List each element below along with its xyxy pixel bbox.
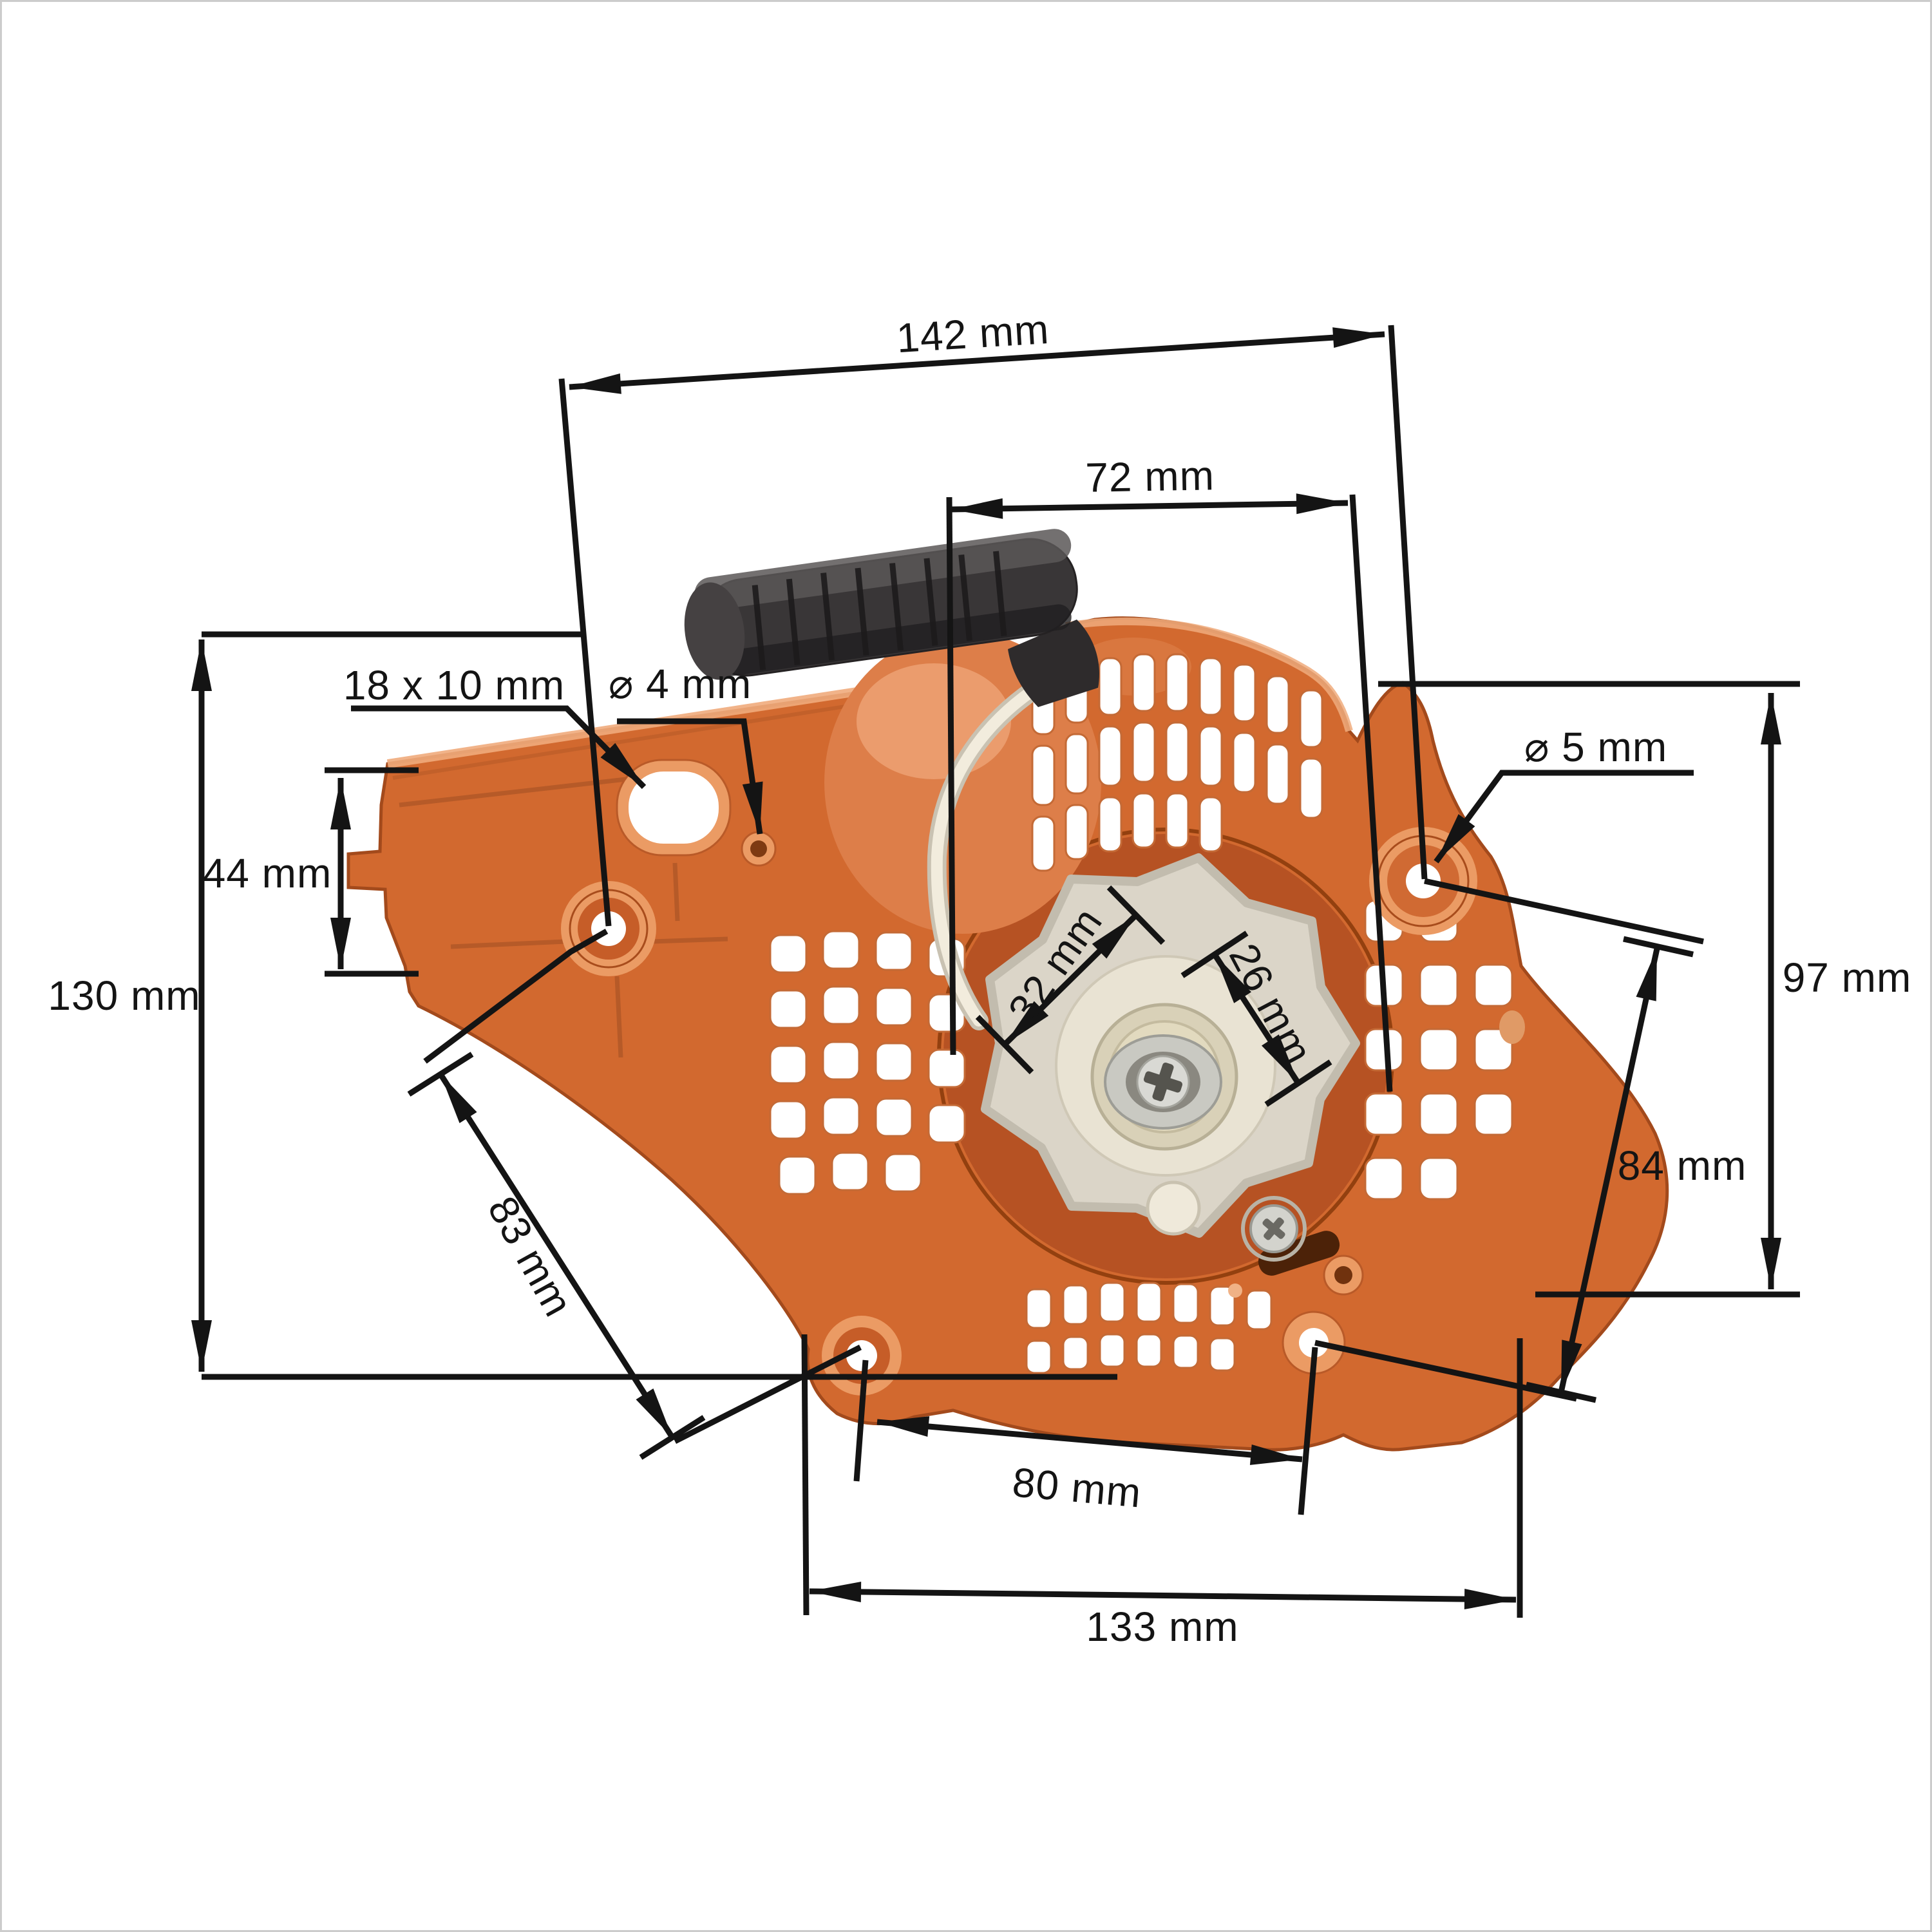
label-142mm: 142 mm — [895, 306, 1050, 361]
label-130mm: 130 mm — [48, 972, 200, 1019]
diagram-canvas: 142 mm 72 mm 18 x 10 mm ⌀ 4 mm ⌀ 5 mm 44… — [0, 0, 1932, 1932]
hole-4mm — [742, 832, 775, 866]
ext-72-left — [949, 497, 953, 1055]
label-4mm: ⌀ 4 mm — [609, 661, 752, 707]
label-72mm: 72 mm — [1085, 452, 1215, 500]
label-44mm: 44 mm — [203, 850, 332, 896]
ext-133-left — [804, 1334, 806, 1615]
label-133mm: 133 mm — [1086, 1604, 1238, 1650]
label-97mm: 97 mm — [1783, 954, 1912, 1001]
label-slot-18x10: 18 x 10 mm — [343, 662, 565, 708]
right-edge-nub — [1499, 1010, 1525, 1044]
recoil-starter-dimension-diagram: 142 mm 72 mm 18 x 10 mm ⌀ 4 mm ⌀ 5 mm 44… — [0, 0, 1932, 1932]
label-84mm: 84 mm — [1618, 1142, 1747, 1189]
label-5mm: ⌀ 5 mm — [1524, 724, 1667, 770]
rope-coil — [1148, 1182, 1199, 1234]
